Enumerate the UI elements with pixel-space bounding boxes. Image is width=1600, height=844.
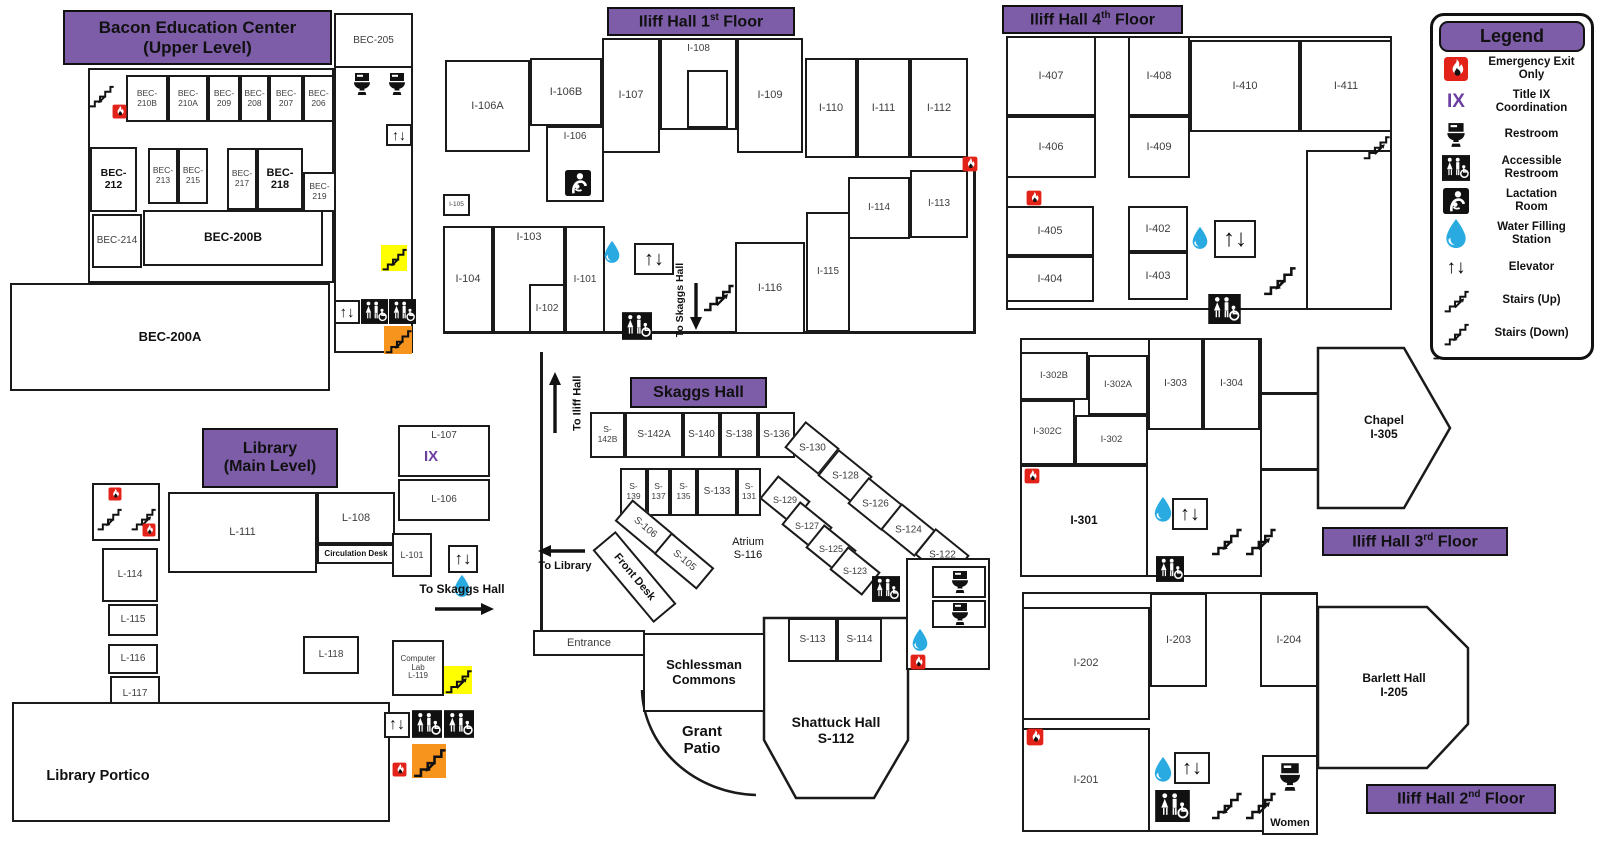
room-l-107: L-107 — [398, 425, 490, 477]
stairs-up-icon — [1244, 524, 1276, 556]
room-label: L-118 — [319, 649, 344, 660]
fire-exit-icon — [112, 104, 127, 119]
accessible-icon — [1156, 556, 1184, 582]
room-label: S-127 — [795, 521, 819, 531]
title-ix-icon: IX — [1447, 92, 1465, 111]
elevator-icon: ↑↓ — [386, 124, 412, 146]
elevator-icon: ↑↓ — [448, 545, 478, 573]
room-label: BEC- 219 — [309, 182, 329, 201]
fire-exit-icon — [392, 762, 407, 777]
legend-panel: LegendEmergency Exit OnlyIXTitle IX Coor… — [1430, 13, 1594, 360]
room-label: I-404 — [1037, 273, 1062, 285]
room-i-302a: I-302A — [1088, 355, 1148, 415]
room-label: S-114 — [847, 634, 873, 645]
legend-item-label: Stairs (Up) — [1478, 294, 1585, 307]
stairs-down-icon — [1210, 788, 1242, 820]
arrow-down-icon — [687, 282, 705, 330]
room-label: BEC-205 — [353, 35, 394, 46]
banner-text: Bacon Education Center(Upper Level) — [99, 18, 296, 56]
room-i-302b: I-302B — [1020, 352, 1088, 400]
accessible-icon — [1208, 294, 1241, 324]
room-i-104: I-104 — [443, 226, 493, 333]
room-i-407: I-407 — [1006, 36, 1096, 116]
fire-exit-icon — [962, 156, 978, 172]
room-label: I-202 — [1073, 657, 1098, 669]
room-label: I-110 — [819, 102, 843, 114]
accessible-icon — [872, 576, 900, 602]
lactation-icon — [1439, 188, 1473, 214]
fire-exit-icon — [142, 523, 156, 537]
accessible-icon — [389, 299, 416, 324]
room-label: I-408 — [1146, 70, 1171, 82]
room-label: S-133 — [704, 486, 731, 497]
map-text: To Iliff Hall — [572, 348, 585, 458]
room-label: I-116 — [758, 282, 782, 294]
title-ix-icon: IX — [424, 448, 438, 465]
elevator-icon: ↑↓ — [634, 243, 674, 275]
room-s-137: S- 137 — [647, 468, 670, 516]
room-label: BEC- 208 — [244, 89, 264, 108]
room-i-105: I-105 — [443, 194, 470, 216]
room-label: S-129 — [773, 495, 797, 505]
room-i-303: I-303 — [1148, 338, 1203, 430]
fire-exit-icon — [1026, 728, 1044, 746]
room-i-405: I-405 — [1006, 206, 1094, 256]
elevator-icon: ↑↓ — [1174, 752, 1210, 784]
room-i-106a: I-106A — [445, 60, 530, 152]
arrow-left-icon — [538, 542, 586, 560]
stairs-down-icon — [1262, 262, 1296, 296]
room-label: S- 139 — [626, 482, 640, 501]
room-s-133: S-133 — [697, 468, 737, 516]
legend-item-label: Elevator — [1478, 261, 1585, 274]
room-label: I-407 — [1038, 70, 1063, 82]
room-label: I-114 — [868, 202, 890, 213]
room-label: I-204 — [1276, 634, 1301, 646]
room-i-302: I-302 — [1075, 415, 1148, 465]
room-label: I-102 — [536, 303, 559, 314]
room-l-118: L-118 — [303, 636, 359, 674]
room-bec-200a: BEC-200A — [10, 283, 330, 391]
stairs-up-icon — [1439, 287, 1473, 313]
room-label: S- 131 — [742, 482, 756, 501]
room-i-406: I-406 — [1006, 116, 1096, 178]
room-box — [687, 70, 728, 128]
room-label: BEC- 210B — [137, 89, 157, 108]
room-i-106b: I-106B — [530, 58, 602, 126]
room-label: S- 135 — [676, 482, 690, 501]
arrow-right-icon — [434, 600, 494, 618]
banner-library: Library(Main Level) — [202, 428, 338, 488]
room-label: I-405 — [1037, 225, 1062, 237]
legend-item: Stairs (Up) — [1439, 284, 1585, 317]
stairs-down-icon — [96, 505, 122, 531]
map-text: Shattuck Hall S-112 — [781, 714, 891, 746]
toilet-icon — [948, 602, 972, 626]
room-l-111: L-111 — [168, 492, 317, 573]
room-label: I-302B — [1040, 371, 1068, 382]
legend-item-label: Stairs (Down) — [1478, 327, 1585, 340]
room-bec-212: BEC- 212 — [90, 147, 137, 212]
stairs-down-icon — [88, 82, 114, 108]
room-label: L-116 — [121, 653, 146, 664]
room-label: L-107 — [431, 430, 457, 441]
room-bec-218: BEC- 218 — [257, 148, 303, 210]
map-text: To Skaggs Hall — [407, 583, 517, 597]
room-s-114: S-114 — [837, 618, 882, 662]
room-l-115: L-115 — [108, 604, 158, 636]
room-i-116: I-116 — [735, 242, 805, 334]
room-i-113: I-113 — [910, 170, 968, 238]
room-bec-215: BEC- 215 — [178, 148, 208, 204]
room-label: I-302C — [1033, 427, 1062, 438]
room-bec-214: BEC-214 — [92, 214, 142, 268]
room-label: BEC- 218 — [267, 167, 294, 192]
room-label: I-111 — [872, 102, 895, 114]
room-label: BEC- 206 — [308, 89, 328, 108]
room-label: I-403 — [1145, 270, 1170, 282]
water-icon — [1439, 218, 1473, 251]
room-label: I-104 — [455, 273, 480, 285]
stairs-down-icon — [1439, 320, 1473, 346]
room-label: BEC- 212 — [101, 168, 127, 192]
room-label: L-111 — [229, 526, 256, 538]
legend-item: Water Filling Station — [1439, 218, 1585, 251]
toilet-icon — [350, 72, 374, 96]
stairs-up-icon — [444, 666, 472, 694]
room-label: S-125 — [819, 544, 843, 554]
room-label: Schlessman Commons — [666, 658, 742, 687]
accessible-icon — [622, 312, 652, 340]
room-label: I-115 — [817, 266, 839, 277]
accessible-icon — [1439, 155, 1473, 181]
room-label: BEC- 209 — [214, 89, 234, 108]
room-label: S-126 — [862, 498, 889, 509]
room-label: I-106B — [550, 86, 582, 98]
room-label: S- 137 — [651, 482, 665, 501]
room-label: BEC- 210A — [178, 89, 198, 108]
banner-bacon: Bacon Education Center(Upper Level) — [63, 10, 332, 65]
room-i-402: I-402 — [1128, 206, 1188, 252]
room-label: S-113 — [800, 634, 826, 645]
map-text: Grant Patio — [647, 723, 757, 758]
fire-exit-icon — [108, 487, 122, 501]
room-i-409: I-409 — [1128, 116, 1190, 178]
room-s-142b: S- 142B — [590, 412, 625, 458]
room-i-410: I-410 — [1190, 40, 1300, 132]
room-i-203: I-203 — [1150, 593, 1207, 687]
room-library-portico: Library Portico — [12, 702, 390, 822]
room-label: S-128 — [832, 470, 859, 481]
banner-text: Library(Main Level) — [224, 440, 316, 476]
legend-item-label: Title IX Coordination — [1478, 89, 1585, 115]
room-label: I-109 — [757, 89, 782, 101]
room-label: Library Portico — [46, 768, 149, 784]
room-label: S-142A — [637, 429, 670, 440]
room-bec-219: BEC- 219 — [303, 172, 336, 212]
elevator-icon: ↑↓ — [1214, 220, 1256, 258]
room-i-102: I-102 — [529, 284, 565, 333]
arrow-up-icon — [546, 372, 564, 434]
banner-skaggs: Skaggs Hall — [630, 377, 767, 408]
room-label: S-124 — [895, 524, 922, 535]
room-box — [1306, 150, 1392, 310]
room-label: L-117 — [123, 688, 148, 699]
room-label: I-106 — [564, 131, 587, 142]
legend-item-label: Restroom — [1478, 128, 1585, 141]
room-bec-209: BEC- 209 — [208, 75, 240, 122]
room-label: BEC-200B — [204, 231, 262, 244]
stairs-down-icon — [1210, 524, 1242, 556]
map-text: Chapel I-305 — [1329, 414, 1439, 442]
room-label: I-106A — [471, 100, 503, 112]
toilet-icon — [948, 570, 972, 594]
room-i-112: I-112 — [910, 58, 968, 158]
water-icon — [1190, 226, 1210, 251]
room-label: L-114 — [118, 569, 143, 580]
room-l-106: L-106 — [398, 479, 490, 521]
legend-item-label: Lactation Room — [1478, 188, 1585, 214]
room-bec-200b: BEC-200B — [143, 210, 323, 266]
legend-item: ↑↓Elevator — [1439, 251, 1585, 284]
room-l-101: L-101 — [392, 533, 432, 577]
room-bec-207: BEC- 207 — [269, 75, 303, 122]
room-label: I-304 — [1220, 378, 1243, 389]
legend-item: Lactation Room — [1439, 184, 1585, 217]
room-label: BEC- 215 — [183, 166, 203, 185]
room-label: S-138 — [726, 429, 753, 440]
room-i-204: I-204 — [1260, 593, 1318, 687]
room-label: BEC-200A — [139, 330, 202, 345]
water-icon — [1152, 496, 1174, 524]
elevator-icon: ↑↓ — [1439, 258, 1473, 277]
room-label: I-402 — [1145, 223, 1170, 235]
room-i-404: I-404 — [1006, 256, 1094, 302]
banner-iliff4: Iliff Hall 4th Floor — [1002, 5, 1183, 34]
fire-exit-icon — [910, 654, 926, 670]
room-i-107: I-107 — [602, 38, 660, 153]
toilet-icon — [385, 72, 409, 96]
stairs-down-icon — [384, 326, 412, 354]
room-bec-210a: BEC- 210A — [168, 75, 208, 122]
fire-exit-icon — [1026, 190, 1042, 206]
legend-item: IXTitle IX Coordination — [1439, 85, 1585, 118]
room-s-140: S-140 — [683, 412, 720, 458]
elevator-icon: ↑↓ — [1447, 258, 1466, 277]
room-l-108: L-108 — [317, 492, 395, 544]
banner-iliff1: Iliff Hall 1st Floor — [607, 7, 795, 36]
banner-text: Iliff Hall 1st Floor — [639, 12, 763, 31]
room-i-109: I-109 — [737, 38, 803, 153]
title-ix-icon: IX — [1439, 92, 1473, 111]
room-label: S- 142B — [598, 425, 618, 444]
room-label: L-108 — [342, 512, 370, 524]
room-s-131: S- 131 — [737, 468, 761, 516]
map-text: Atrium S-116 — [693, 536, 803, 561]
room-label: Computer Lab L-119 — [400, 655, 435, 682]
legend-item-label: Water Filling Station — [1478, 221, 1585, 247]
room-label: I-302A — [1104, 380, 1132, 391]
stairs-down-icon — [381, 245, 407, 271]
room-i-111: I-111 — [857, 58, 910, 158]
room-s-142a: S-142A — [625, 412, 683, 458]
room-i-202: I-202 — [1022, 607, 1150, 720]
room-l-116: L-116 — [108, 644, 158, 674]
room-label: I-301 — [1070, 514, 1097, 527]
room-s-135: S- 135 — [670, 468, 697, 516]
room-label: I-410 — [1232, 80, 1257, 92]
room-bec-208: BEC- 208 — [240, 75, 269, 122]
room-label: I-107 — [618, 89, 643, 101]
room-label: I-411 — [1334, 80, 1358, 92]
legend-item: Accessible Restroom — [1439, 151, 1585, 184]
room-label: S-106 — [631, 515, 659, 541]
room-computer-lab-l-119: Computer Lab L-119 — [392, 640, 444, 696]
water-icon — [1152, 756, 1174, 784]
banner-text: Skaggs Hall — [653, 384, 744, 402]
stairs-up-icon — [1362, 132, 1390, 160]
room-label: S-140 — [688, 429, 715, 440]
elevator-icon: ↑↓ — [1172, 498, 1208, 530]
legend-item-label: Accessible Restroom — [1478, 155, 1585, 181]
room-i-304: I-304 — [1203, 338, 1260, 430]
room-i-115: I-115 — [806, 212, 850, 332]
accessible-icon — [361, 299, 388, 324]
room-label: I-108 — [687, 43, 710, 54]
room-label: BEC-214 — [97, 235, 138, 246]
banner-iliff3: Iliff Hall 3rd Floor — [1322, 527, 1508, 556]
room-label: I-113 — [928, 198, 950, 209]
water-icon — [910, 628, 930, 653]
room-label: L-101 — [400, 550, 423, 560]
room-label: BEC- 207 — [276, 89, 296, 108]
legend-title: Legend — [1439, 21, 1585, 52]
room-bec-205: BEC-205 — [334, 13, 413, 68]
room-i-403: I-403 — [1128, 252, 1188, 300]
legend-item: Emergency Exit Only — [1439, 52, 1585, 85]
room-s-113: S-113 — [788, 618, 837, 662]
accessible-icon — [1155, 790, 1190, 822]
room-label: I-302 — [1101, 435, 1123, 446]
banner-iliff2: Iliff Hall 2nd Floor — [1366, 784, 1556, 814]
map-text: To Library — [510, 560, 620, 573]
banner-text: Iliff Hall 3rd Floor — [1352, 532, 1477, 551]
room-label: S-123 — [843, 566, 867, 576]
wall — [1262, 392, 1318, 395]
room-label: I-409 — [1146, 141, 1171, 153]
legend-item: Restroom — [1439, 118, 1585, 151]
room-label: S-136 — [763, 429, 790, 440]
room-label: I-406 — [1038, 141, 1063, 153]
fire-exit-icon — [1439, 56, 1473, 82]
room-bec-206: BEC- 206 — [303, 75, 334, 122]
wall — [1262, 468, 1318, 471]
room-bec-210b: BEC- 210B — [126, 75, 168, 122]
accessible-icon — [444, 710, 474, 738]
room-s-138: S-138 — [720, 412, 758, 458]
wall — [540, 352, 543, 632]
map-text: To Skaggs Hall — [674, 245, 686, 355]
room-label: L-106 — [431, 494, 457, 505]
room-label: I-112 — [927, 102, 951, 114]
room-label: I-303 — [1164, 378, 1187, 389]
room-l-114: L-114 — [102, 548, 158, 602]
room-label: L-115 — [121, 614, 146, 625]
wall — [973, 158, 976, 334]
room-i-411: I-411 — [1300, 40, 1392, 132]
room-bec-217: BEC- 217 — [227, 148, 257, 210]
stairs-down-icon — [412, 744, 446, 778]
elevator-icon: ↑↓ — [334, 300, 360, 324]
room-label: I-101 — [574, 274, 597, 285]
elevator-icon: ↑↓ — [384, 712, 410, 738]
room-circulation-desk: Circulation Desk — [317, 544, 395, 564]
room-i-408: I-408 — [1128, 36, 1190, 116]
banner-text: Iliff Hall 2nd Floor — [1397, 789, 1525, 808]
lactation-icon — [565, 170, 591, 196]
map-text: Barlett Hall I-205 — [1339, 672, 1449, 700]
toilet-icon — [1275, 762, 1305, 792]
room-bec-213: BEC- 213 — [148, 148, 178, 204]
room-label: I-203 — [1166, 634, 1191, 646]
room-label: Women — [1270, 817, 1310, 829]
room-label: I-105 — [449, 201, 464, 208]
room-i-110: I-110 — [805, 58, 857, 158]
room-label: I-103 — [516, 231, 541, 243]
room-label: Entrance — [567, 637, 611, 649]
legend-item-label: Emergency Exit Only — [1478, 56, 1585, 82]
room-label: I-201 — [1073, 774, 1098, 786]
room-schlessman-commons: Schlessman Commons — [643, 633, 765, 712]
water-icon — [602, 240, 622, 265]
campus-floor-plan-map: BEC-205BEC- 210BBEC- 210ABEC- 209BEC- 20… — [0, 0, 1600, 844]
room-label: BEC- 213 — [153, 166, 173, 185]
room-label: S-130 — [799, 442, 826, 453]
room-label: Circulation Desk — [324, 550, 387, 559]
room-i-114: I-114 — [848, 177, 910, 239]
stairs-up-icon — [702, 280, 734, 312]
legend-item: Stairs (Down) — [1439, 317, 1585, 350]
fire-exit-icon — [1024, 468, 1040, 484]
room-i-101: I-101 — [565, 226, 605, 333]
room-label: BEC- 217 — [232, 169, 252, 188]
room-entrance: Entrance — [533, 630, 645, 656]
toilet-icon — [1439, 122, 1473, 148]
stairs-up-icon — [1244, 788, 1276, 820]
room-i-302c: I-302C — [1020, 400, 1075, 465]
banner-text: Iliff Hall 4th Floor — [1030, 10, 1155, 29]
accessible-icon — [412, 710, 442, 738]
